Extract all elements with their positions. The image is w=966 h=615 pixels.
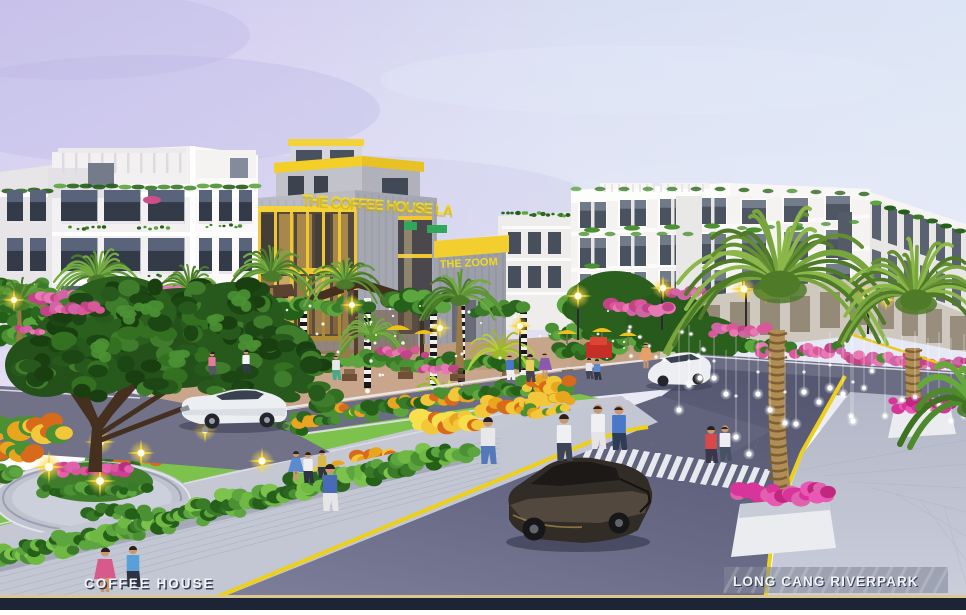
svg-text:LONG CANG RIVERPARK: LONG CANG RIVERPARK — [733, 574, 919, 589]
svg-text:COFFEE HOUSE: COFFEE HOUSE — [84, 576, 215, 591]
